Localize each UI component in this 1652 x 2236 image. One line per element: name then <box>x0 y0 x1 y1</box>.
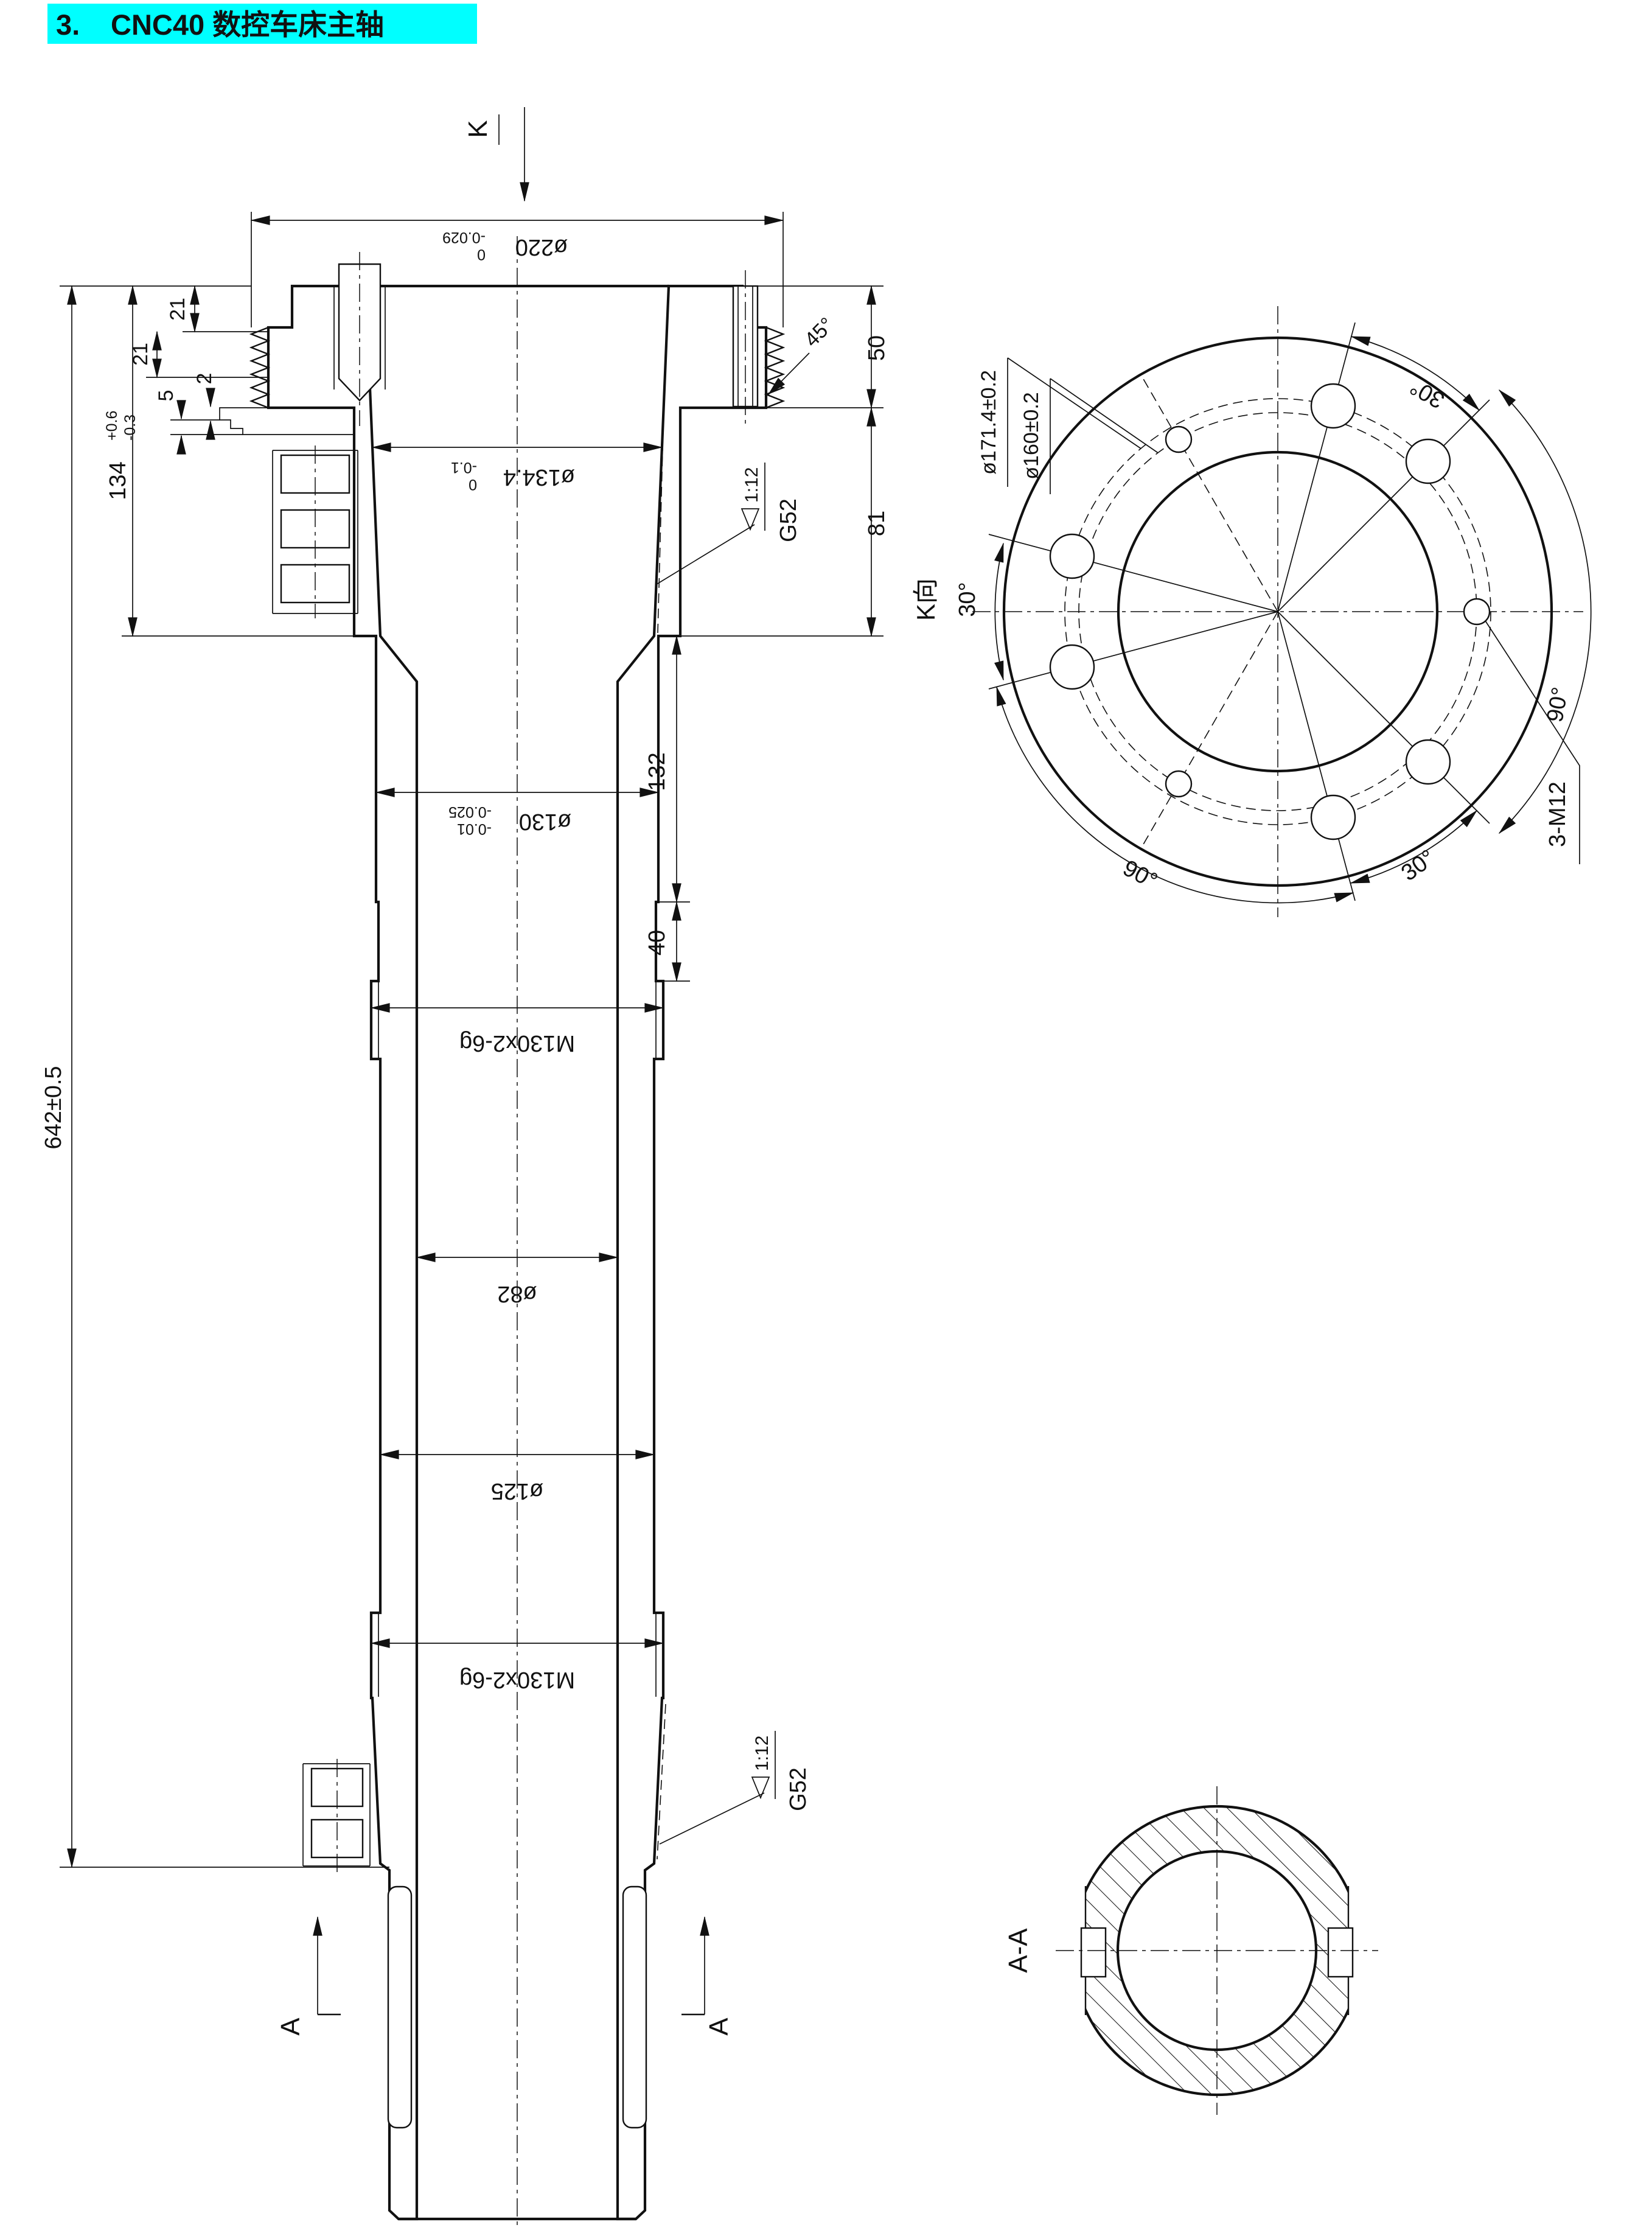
kview-angle-left: 30° <box>955 582 980 617</box>
dim-len5: 5 <box>155 390 243 452</box>
flange-underside-step <box>220 408 354 435</box>
title-number: 3. <box>56 9 80 41</box>
note-taper-lower-ratio: 1:12 <box>752 1736 772 1771</box>
flange-stud-left <box>334 252 385 426</box>
dim-bore134-sup: 0 <box>469 476 477 493</box>
dim-od130-sup: -0.01 <box>457 820 492 837</box>
dim-len132: 132 <box>644 636 690 902</box>
section-arrow-left: A <box>276 1917 341 2036</box>
section-arrow-right-label: A <box>704 2018 734 2036</box>
dim-thread-upper: M130x2-6g <box>371 1008 663 1056</box>
dim-od220-sup: 0 <box>477 246 486 263</box>
note-taper-upper-gauge: G52 <box>776 498 801 542</box>
page-title: 3. CNC40 数控车床主轴 <box>47 4 477 44</box>
kview-m12-note: 3-M12 <box>1485 621 1580 864</box>
dim-bore134-sub: -0.1 <box>451 459 477 476</box>
dim-len21b-value: 21 <box>129 343 152 366</box>
aa-notch-right <box>1328 1928 1353 1977</box>
dim-len21a: 21 <box>166 286 268 332</box>
k-arrow-label: K <box>463 120 493 138</box>
kview-bc1-label: ø171.4±0.2 <box>977 370 1000 475</box>
dim-len2-value: 2 <box>193 373 216 385</box>
dim-thread-upper-value: M130x2-6g <box>459 1030 575 1056</box>
drawing-canvas: 3. CNC40 数控车床主轴 K <box>0 0 1652 2233</box>
upper-bearing-rollers <box>273 445 358 618</box>
title-text: CNC40 数控车床主轴 <box>111 9 384 41</box>
dim-len642-value: 642±0.5 <box>41 1066 66 1149</box>
note-taper-upper: 1:12 G52 <box>657 463 801 584</box>
main-section-view: K <box>41 107 890 2227</box>
tail-slot-right <box>623 1887 646 2128</box>
dim-len81-value: 81 <box>864 511 890 536</box>
section-arrow-left-label: A <box>276 2018 305 2036</box>
dim-len2: 2 <box>170 373 220 438</box>
dim-od130-sub: -0.025 <box>448 803 492 820</box>
kview-label: K向 <box>911 578 940 621</box>
dim-len50-value: 50 <box>864 335 890 361</box>
lower-bearing-rollers <box>303 1759 370 1872</box>
drawing-sheet: 3. CNC40 数控车床主轴 K <box>0 0 1652 2233</box>
dim-len21a-value: 21 <box>166 298 189 321</box>
dim-thread-lower: M130x2-6g <box>371 1643 663 1693</box>
k-view: K向 30° 30° 90° 90° 30° 3-M12 ø171.4±0.2 … <box>911 306 1591 917</box>
kview-angle-right: 90° <box>1542 685 1574 724</box>
dim-len134-sup: +0.6 <box>103 411 120 441</box>
dim-od130-value: ø130 <box>519 809 572 834</box>
kview-m12-label: 3-M12 <box>1545 781 1570 847</box>
aa-notch-left <box>1081 1928 1106 1977</box>
dim-bore134-value: ø134.4 <box>503 464 575 490</box>
dim-len5-value: 5 <box>155 390 178 402</box>
note-chamfer45-label: 45° <box>800 313 838 351</box>
dim-len40-value: 40 <box>644 930 670 956</box>
dim-len50: 50 <box>755 286 890 408</box>
dim-bore82-value: ø82 <box>497 1281 537 1307</box>
dim-len132-value: 132 <box>644 752 670 791</box>
dim-len40: 40 <box>644 902 690 981</box>
note-taper-upper-ratio: 1:12 <box>742 467 762 503</box>
k-direction-arrow: K <box>463 107 525 201</box>
aa-section-view: A-A <box>1003 1786 1378 2115</box>
flange-thread-left <box>251 327 268 408</box>
kview-angle-bottom-right: 30° <box>1396 845 1440 886</box>
kview-bc2-label: ø160±0.2 <box>1020 392 1043 479</box>
flange-thread-right <box>766 327 783 408</box>
kview-bolt-circle-notes: ø171.4±0.2 ø160±0.2 <box>977 358 1158 494</box>
note-taper-lower-gauge: G52 <box>786 1767 811 1811</box>
dim-len134-sub: -0.3 <box>122 414 139 441</box>
dim-od220-sub: -0.029 <box>442 229 486 246</box>
dim-thread-lower-value: M130x2-6g <box>459 1667 575 1693</box>
dim-len21b: 21 <box>129 332 268 377</box>
dim-od220-value: ø220 <box>515 234 568 260</box>
note-chamfer45: 45° <box>768 313 838 394</box>
dim-od125-value: ø125 <box>491 1478 544 1504</box>
tail-slot-left <box>388 1887 411 2128</box>
kview-angle-bottom-left: 90° <box>1118 855 1161 894</box>
aa-view-label: A-A <box>1003 1928 1033 1973</box>
section-arrow-right: A <box>681 1917 734 2036</box>
dim-bore134: ø134.4 0 -0.1 <box>372 447 662 493</box>
dim-len134-value: 134 <box>105 461 131 500</box>
kview-angle-arcs <box>995 337 1591 903</box>
flange-stud-right <box>733 270 758 426</box>
note-taper-lower: 1:12 G52 <box>660 1731 811 1844</box>
